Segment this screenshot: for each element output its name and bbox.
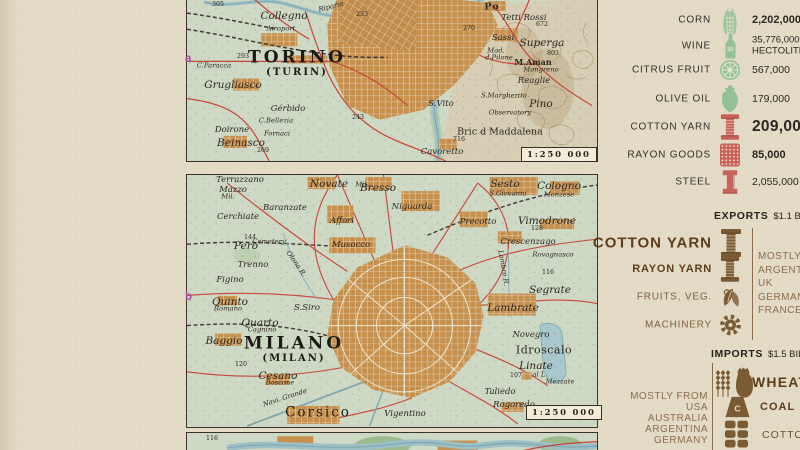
corn-icon — [713, 5, 747, 35]
imports-amount: $1.5 BILL. — [768, 349, 800, 360]
stat-row-olive-oil: OLIVE OIL 179,000 — [600, 85, 800, 113]
spool-icon — [720, 256, 740, 282]
citrus-icon — [713, 59, 747, 81]
svg-text:C: C — [734, 403, 741, 413]
spool-icon — [713, 114, 747, 140]
stat-label: CITRUS FRUIT — [632, 65, 711, 76]
map-panel-milano — [186, 174, 598, 428]
margin-letter-b: b — [185, 291, 192, 303]
torino-scale-label: 1:250 000 — [521, 147, 597, 162]
stat-label: RAYON GOODS — [627, 150, 711, 161]
bales-icon — [724, 420, 749, 450]
stat-label: STEEL — [675, 177, 711, 188]
milano-scale-label: 1:250 000 — [526, 405, 602, 420]
stat-row-corn: CORN 2,202,000 — [600, 6, 800, 34]
torino-map-art — [187, 0, 597, 161]
export-item-label: MACHINERY — [645, 319, 712, 330]
stat-row-steel: STEEL 2,055,000 — [600, 168, 800, 196]
export-destination: FRANCE — [758, 304, 800, 318]
wine-icon — [713, 34, 747, 59]
exports-destinations: MOSTLY TOARGENTINAUKGERMANYFRANCE — [758, 250, 800, 318]
stat-value: 85,000 — [752, 149, 786, 161]
exports-header: EXPORTS$1.1 BILL. — [714, 206, 800, 224]
milano-map-art — [187, 175, 597, 427]
wheatsack-icon — [714, 365, 754, 399]
stat-row-cotton-yarn: COTTON YARN 209,000 — [600, 113, 800, 141]
steel-icon — [713, 170, 747, 194]
stat-row-citrus-fruit: CITRUS FRUIT 567,000 — [600, 56, 800, 84]
page-binding-edge — [0, 0, 18, 450]
import-item-coal: CCOAL — [600, 395, 800, 419]
imports-header: IMPORTS$1.5 BILL. — [711, 344, 800, 362]
fruits-icon — [720, 286, 742, 308]
import-item-cotton: COTTON — [600, 420, 800, 450]
margin-letter-a: a — [185, 53, 191, 65]
stat-value: 2,055,000 — [752, 176, 799, 188]
rayon-icon — [713, 143, 747, 168]
stat-label: COTTON YARN — [631, 122, 711, 133]
third-map-art — [187, 433, 597, 450]
stat-row-rayon-goods: RAYON GOODS85,000 — [600, 141, 800, 169]
stat-value: 209,000 — [752, 118, 800, 136]
spool-icon — [720, 228, 742, 258]
export-item-label: COTTON YARN — [593, 235, 712, 252]
export-item-label: RAYON YARN — [632, 263, 712, 275]
export-destination: ARGENTINA — [758, 264, 800, 278]
import-item-label: COAL — [760, 401, 795, 413]
coal-icon: C — [724, 395, 751, 419]
oliveoil-icon — [713, 86, 747, 113]
import-item-label: WHEAT — [752, 374, 800, 390]
export-destination: UK — [758, 277, 800, 291]
imports-title: IMPORTS — [711, 348, 763, 360]
import-item-label: COTTON — [762, 429, 800, 441]
exports-divider — [752, 228, 753, 340]
stat-label: OLIVE OIL — [655, 94, 711, 105]
export-destination: GERMANY — [758, 291, 800, 305]
stat-label: WINE — [682, 41, 711, 52]
gear-icon — [720, 314, 741, 335]
stat-value: 179,000 — [752, 93, 790, 105]
trade-statistics-sidebar: CORN 2,202,000WINE 35,776,000HECTOLITERS… — [600, 0, 800, 450]
export-item-label: FRUITS, VEG. — [637, 292, 712, 303]
stat-value: 567,000 — [752, 64, 790, 76]
map-panel-third — [186, 432, 598, 450]
atlas-page: 1:250 000 1:250 000 a b 305RipariaColleg… — [0, 0, 800, 450]
stat-value: 2,202,000 — [752, 14, 800, 26]
export-destination: MOSTLY TO — [758, 250, 800, 264]
exports-title: EXPORTS — [714, 210, 768, 222]
map-panel-torino — [186, 0, 598, 162]
exports-amount: $1.1 BILL. — [773, 211, 800, 222]
stat-value: 35,776,000HECTOLITERS — [752, 36, 800, 57]
stat-label: CORN — [678, 15, 711, 26]
